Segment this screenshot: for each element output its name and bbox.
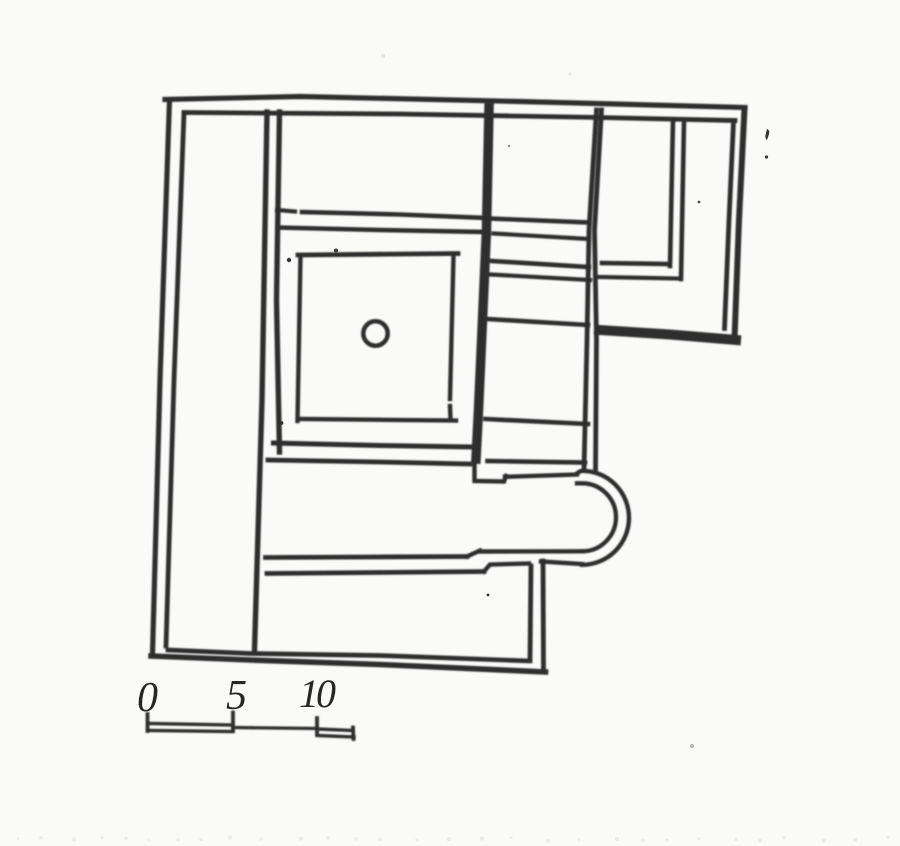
svg-text:5: 5 bbox=[226, 673, 247, 719]
svg-text:0: 0 bbox=[137, 675, 158, 721]
svg-text:10: 10 bbox=[299, 671, 336, 716]
